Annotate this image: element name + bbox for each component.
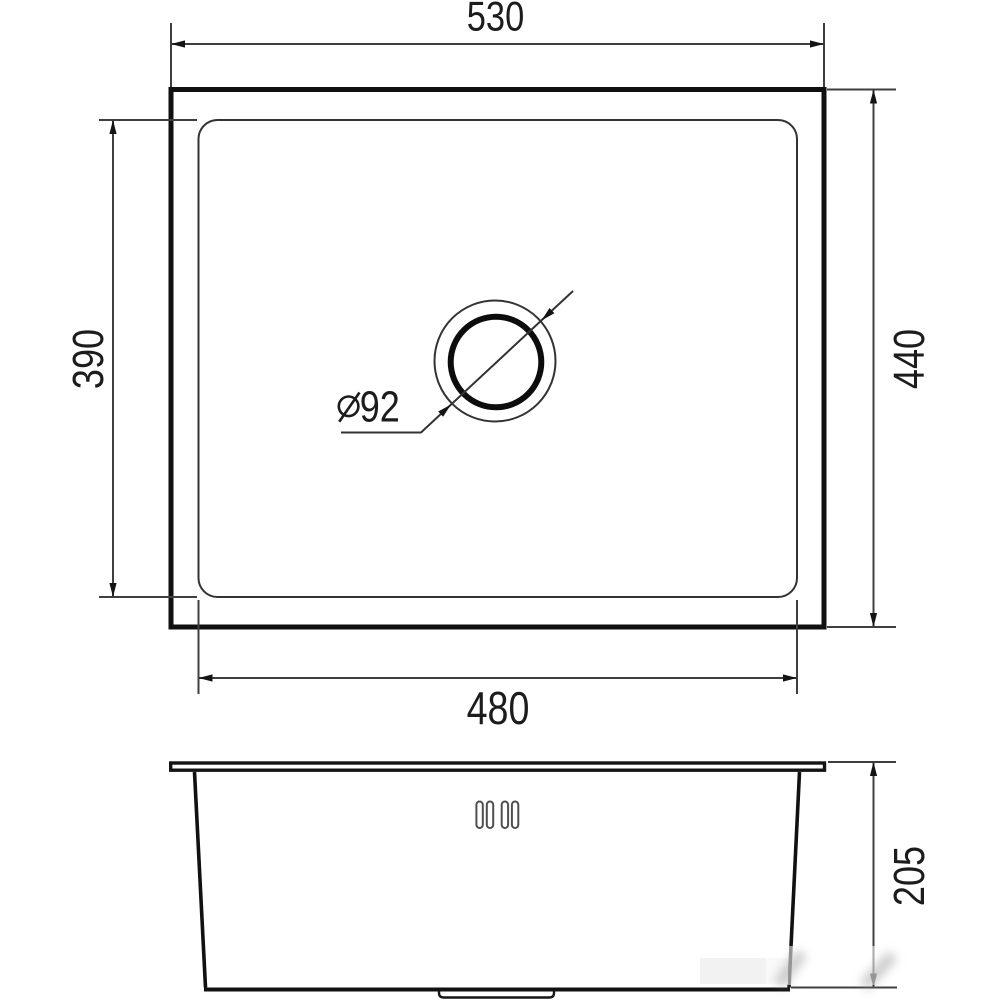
svg-text:205: 205: [885, 846, 934, 906]
svg-text:390: 390: [64, 329, 113, 389]
svg-text:440: 440: [885, 329, 934, 389]
svg-text:530: 530: [467, 0, 524, 40]
svg-text:480: 480: [467, 682, 530, 734]
svg-text:92: 92: [360, 382, 400, 431]
